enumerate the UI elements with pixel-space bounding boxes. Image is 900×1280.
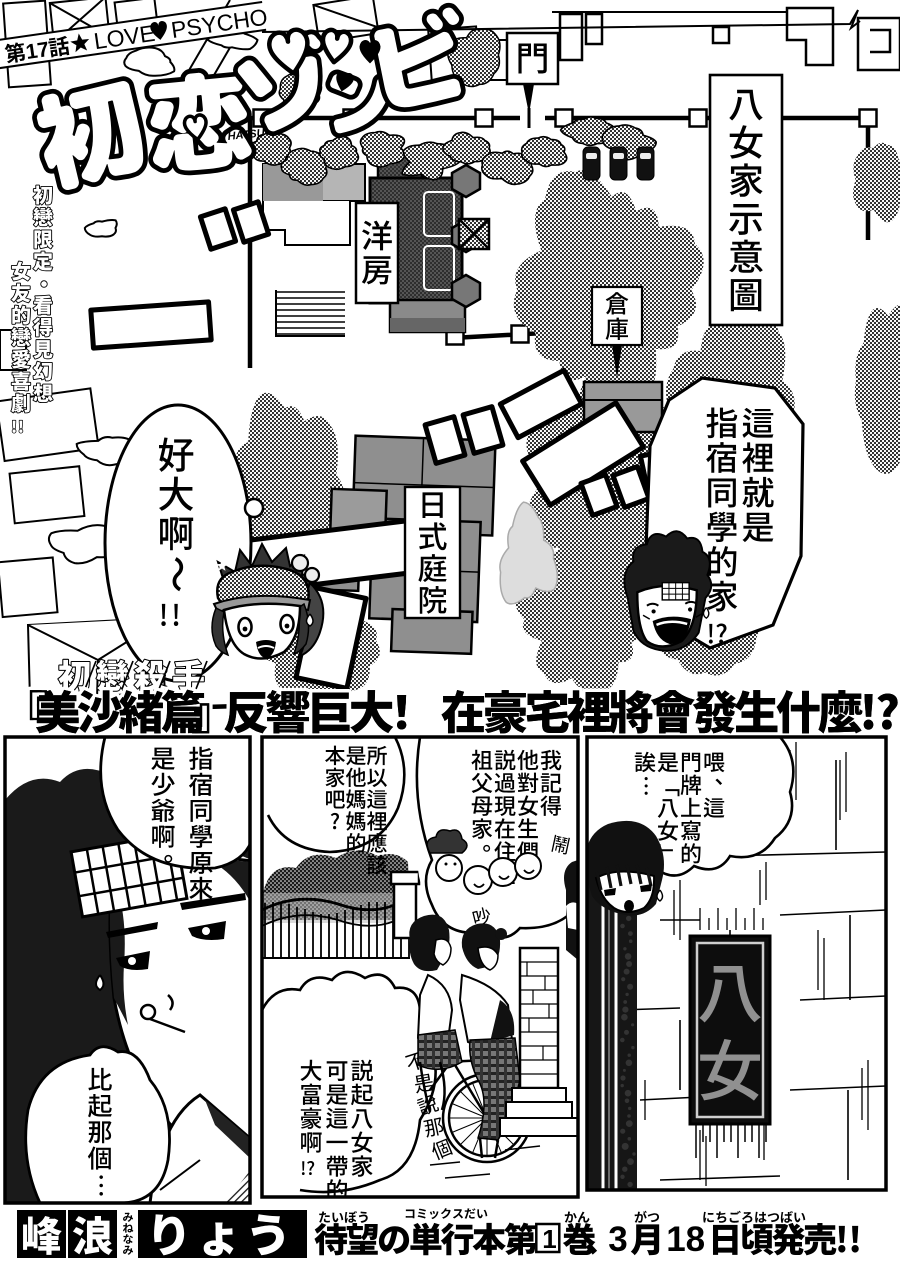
svg-text:18: 18	[666, 1220, 705, 1259]
svg-text:1: 1	[542, 1224, 556, 1254]
svg-text:17: 17	[24, 38, 50, 64]
svg-text:3: 3	[608, 1220, 627, 1259]
